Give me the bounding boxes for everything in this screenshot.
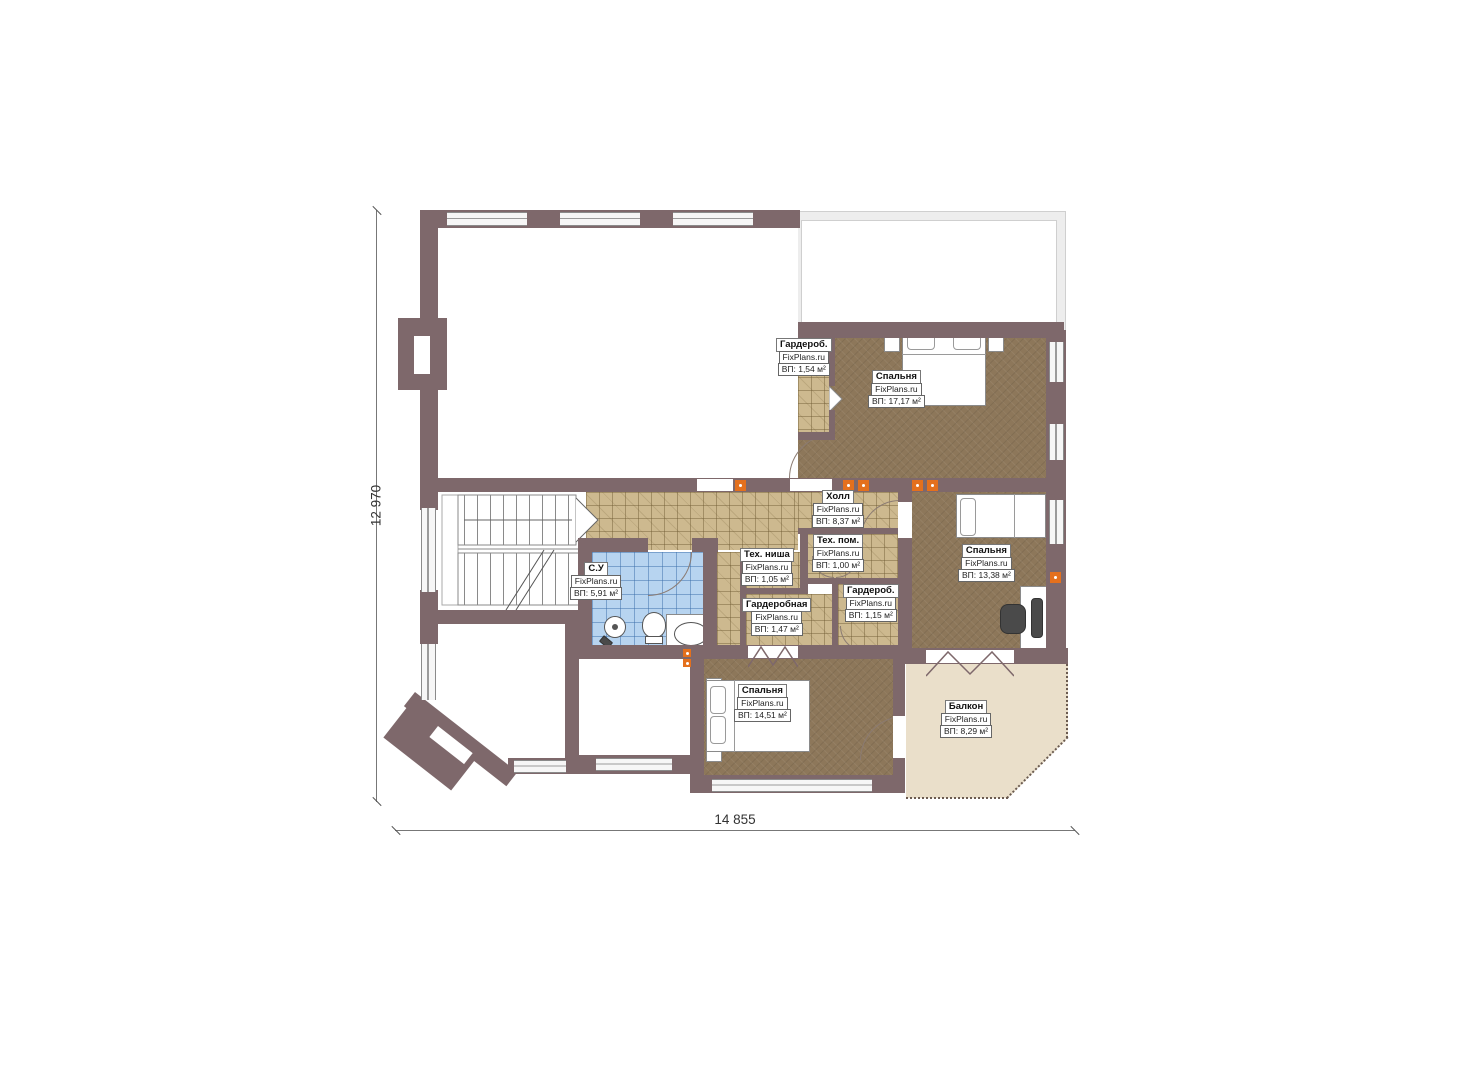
blanket-line [902,354,986,355]
pillow-icon [710,686,726,714]
window [1049,342,1064,382]
roof-outline-inner [801,220,1057,326]
closet-door-icon [829,386,843,412]
room-name: Спальня [872,370,921,384]
wall [703,552,717,645]
room-name: Балкон [945,700,987,714]
room-label-wardrobe: Гардеробная FixPlans.ru ВП: 1,47 м² [742,598,811,636]
toilet-tank [645,636,663,644]
vent-marker [1050,572,1061,583]
dimension-line-horizontal [395,830,1075,831]
wall [565,645,905,659]
room-name: С.У [584,562,607,576]
wall [420,624,438,644]
room-name: Холл [822,490,854,504]
room-name: Тех. ниша [740,548,794,562]
vent-marker [735,480,746,491]
window [1049,424,1064,460]
window [673,212,753,226]
corridor-floor [717,552,740,645]
room-label-tech-niche: Тех. ниша FixPlans.ru ВП: 1,05 м² [740,548,794,586]
chair-icon [1000,604,1026,634]
wall [898,538,912,648]
wall [578,538,648,552]
window [712,779,872,792]
room-name: Спальня [738,684,787,698]
room-area: ВП: 1,54 м² [778,363,830,376]
vent-marker [912,480,923,491]
dimension-tick [372,206,381,215]
balcony-edge [1066,664,1068,738]
room-area: ВП: 8,37 м² [812,515,864,528]
wall [829,410,835,434]
dimension-height: 12 970 [369,456,384,556]
room-lower-middle [592,659,690,755]
room-label-tech-room: Тех. пом. FixPlans.ru ВП: 1,00 м² [812,534,864,572]
room-name: Спальня [962,544,1011,558]
room-name: Тех. пом. [813,534,863,548]
folding-door-icon [748,645,798,669]
window [1049,500,1064,544]
room-name: Гардеробная [742,598,811,612]
room-name: Гардероб. [776,338,832,352]
balcony-door-icon [926,648,1014,678]
room-label-bedroom-3: Спальня FixPlans.ru ВП: 14,51 м² [734,684,791,722]
blanket-line [1014,494,1015,538]
pillow-icon [710,716,726,744]
room-open-space [438,228,798,478]
floor-plan: Гардероб. FixPlans.ru ВП: 1,54 м² Спальн… [0,0,1474,1080]
room-area: ВП: 13,38 м² [958,569,1015,582]
room-area: ВП: 1,05 м² [741,573,793,586]
wall [832,584,838,652]
wall [1046,648,1068,664]
room-area: ВП: 1,47 м² [751,623,803,636]
pillow-icon [960,498,976,536]
vent-marker [927,480,938,491]
room-label-balcony: Балкон FixPlans.ru ВП: 8,29 м² [940,700,992,738]
door-opening [893,716,905,758]
window [560,212,640,226]
door-opening [697,479,733,491]
vent-marker [683,649,691,657]
window [514,760,566,773]
room-label-bathroom: С.У FixPlans.ru ВП: 5,91 м² [570,562,622,600]
wall [565,610,579,774]
room-area: ВП: 14,51 м² [734,709,791,722]
wall [798,432,835,440]
dimension-width: 14 855 [695,812,775,827]
room-area: ВП: 8,29 м² [940,725,992,738]
roof-outline [793,212,1065,334]
balcony-edge [906,797,1008,799]
room-label-bedroom-1: Спальня FixPlans.ru ВП: 17,17 м² [868,370,925,408]
monitor-icon [1031,598,1043,638]
dimension-tick [372,797,381,806]
vent-marker [683,659,691,667]
wall [746,588,806,594]
wall [690,648,704,778]
window [596,758,672,771]
window [421,508,436,592]
room-label-hall: Холл FixPlans.ru ВП: 8,37 м² [812,490,864,528]
window [421,644,436,700]
chimney-flue [414,336,430,374]
wall [692,538,718,552]
wall [898,492,912,502]
room-label-closet-1: Гардероб. FixPlans.ru ВП: 1,54 м² [776,338,832,376]
window [447,212,527,226]
room-area: ВП: 5,91 м² [570,587,622,600]
toilet-icon [642,612,666,638]
shower-head [612,624,618,630]
room-area: ВП: 1,00 м² [812,559,864,572]
room-label-closet-2: Гардероб. FixPlans.ru ВП: 1,15 м² [843,584,899,622]
room-area: ВП: 1,15 м² [845,609,897,622]
wall [798,322,1064,338]
wall [420,610,578,624]
wall [800,530,808,594]
room-area: ВП: 17,17 м² [868,395,925,408]
room-name: Гардероб. [843,584,899,598]
room-label-bedroom-2: Спальня FixPlans.ru ВП: 13,38 м² [958,544,1015,582]
